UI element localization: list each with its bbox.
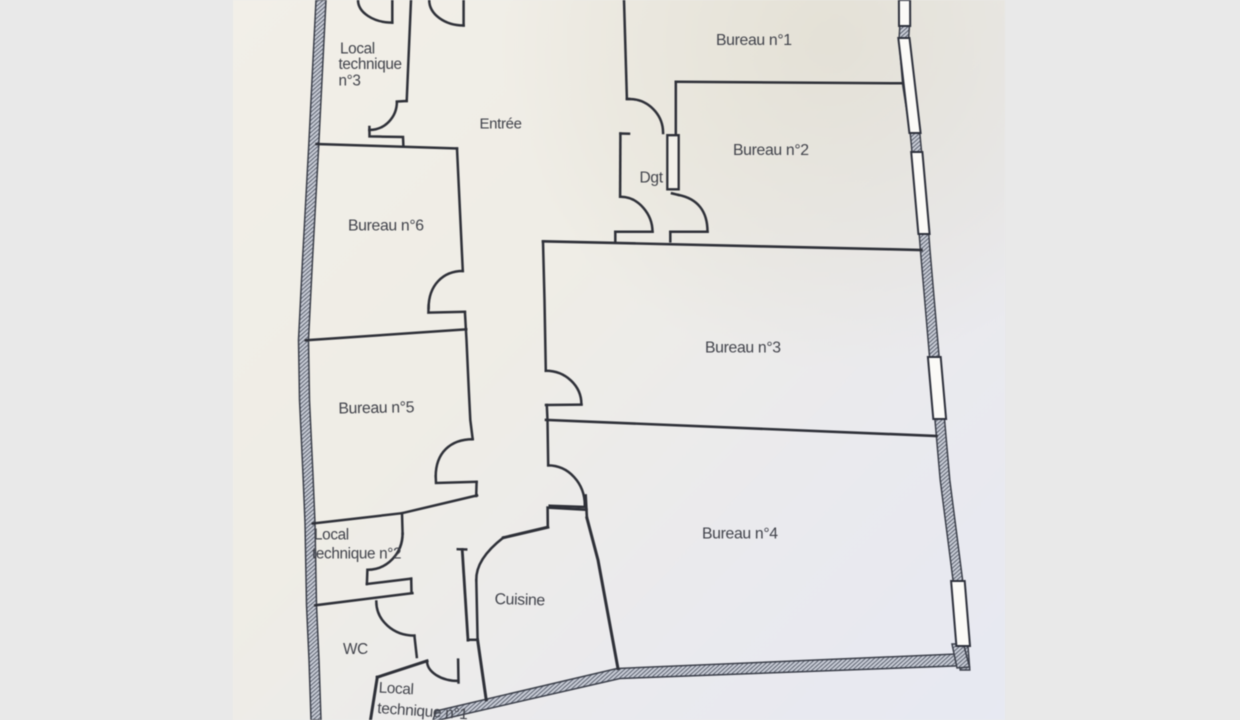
svg-text:Bureau n°3: Bureau n°3	[705, 340, 781, 357]
svg-text:Dgt: Dgt	[640, 170, 664, 187]
svg-text:Bureau n°1: Bureau n°1	[716, 32, 792, 49]
svg-text:n°3: n°3	[339, 73, 361, 90]
svg-text:Local: Local	[314, 527, 349, 544]
svg-text:Local: Local	[378, 680, 414, 699]
svg-text:WC: WC	[343, 641, 368, 658]
svg-text:technique: technique	[339, 56, 402, 73]
svg-text:Entrée: Entrée	[480, 116, 522, 133]
svg-text:Bureau n°6: Bureau n°6	[348, 218, 424, 235]
svg-text:Bureau n°4: Bureau n°4	[702, 526, 778, 543]
svg-text:Bureau n°2: Bureau n°2	[733, 142, 809, 159]
svg-text:technique n°2: technique n°2	[312, 546, 401, 563]
svg-text:Cuisine: Cuisine	[494, 591, 545, 609]
svg-text:Local: Local	[340, 41, 375, 58]
svg-text:Bureau n°5: Bureau n°5	[338, 399, 415, 417]
